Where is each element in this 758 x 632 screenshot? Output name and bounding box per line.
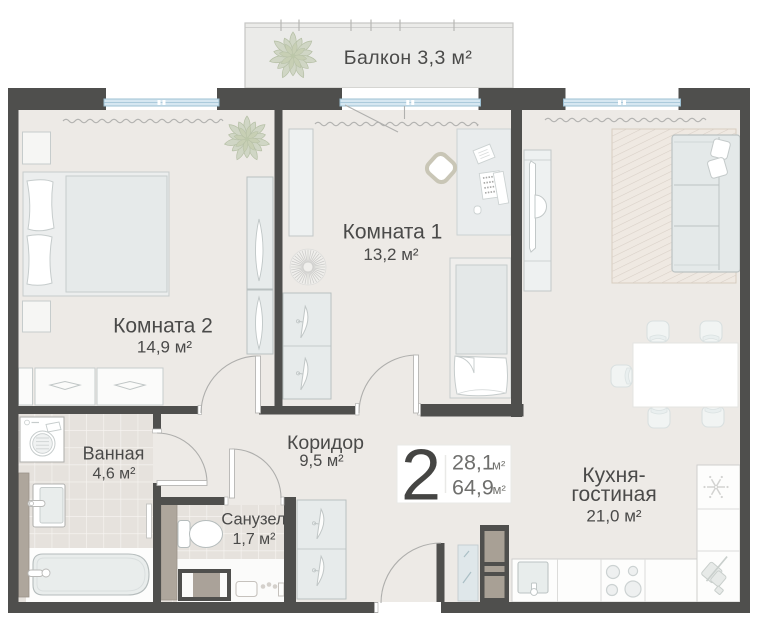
svg-text:Ванная: Ванная — [83, 444, 145, 464]
svg-text:Комната 2: Комната 2 — [113, 315, 213, 338]
svg-text:64,9: 64,9 — [452, 476, 494, 500]
svg-text:Санузел: Санузел — [221, 511, 285, 529]
svg-text:Комната 1: Комната 1 — [343, 221, 443, 244]
svg-text:21,0 м²: 21,0 м² — [586, 507, 641, 526]
svg-text:28,1: 28,1 — [452, 451, 494, 475]
svg-text:гостиная: гостиная — [571, 483, 656, 506]
svg-text:9,5 м²: 9,5 м² — [299, 452, 344, 470]
svg-text:м²: м² — [492, 458, 506, 473]
svg-text:1,7 м²: 1,7 м² — [232, 531, 276, 548]
svg-text:13,2 м²: 13,2 м² — [363, 245, 418, 264]
svg-text:14,9 м²: 14,9 м² — [137, 338, 192, 357]
svg-text:Коридор: Коридор — [287, 432, 364, 454]
svg-text:4,6 м²: 4,6 м² — [92, 466, 136, 483]
svg-text:м²: м² — [493, 482, 507, 497]
svg-text:Балкон 3,3 м²: Балкон 3,3 м² — [344, 47, 473, 69]
svg-text:2: 2 — [401, 436, 441, 516]
